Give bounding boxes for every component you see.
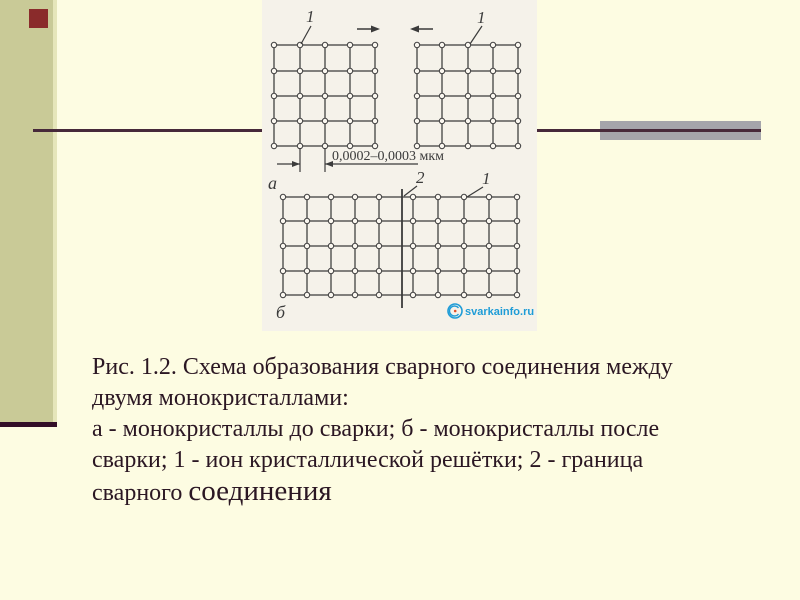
lattice-ion-node xyxy=(514,243,519,248)
ion-label-top-left: 1 xyxy=(306,7,315,26)
leader-boundary xyxy=(404,186,417,196)
lattice-ion-node xyxy=(514,194,519,199)
lattice-ion-node xyxy=(515,68,520,73)
lattice-ion-node xyxy=(372,143,377,148)
lattice-ion-node xyxy=(465,143,470,148)
leader-ion-top-left xyxy=(301,26,311,44)
lattice-ion-node xyxy=(372,118,377,123)
lattice-ion-node xyxy=(486,243,491,248)
lattice-ion-node xyxy=(439,68,444,73)
caption-line-1: Рис. 1.2. Схема образования сварного сое… xyxy=(92,352,772,383)
lattice-ion-node xyxy=(347,118,352,123)
lattice-ion-node xyxy=(414,42,419,47)
watermark: svarkainfo.ru xyxy=(448,304,534,318)
lattice-ion-node xyxy=(328,218,333,223)
left-design-band-edge xyxy=(53,0,57,422)
caption-line-5-start: сварного xyxy=(92,480,188,506)
lattice-ion-node xyxy=(486,292,491,297)
lattice-ion-node xyxy=(347,68,352,73)
lattice-ion-node xyxy=(328,243,333,248)
lattice-ion-node xyxy=(465,93,470,98)
lattice-ion-node xyxy=(439,118,444,123)
welding-scheme-figure: 1 1 0,0002–0,0003 мкм а 2 1 б svarkainfo… xyxy=(262,0,537,331)
lattice-ion-node xyxy=(372,68,377,73)
lattice-ion-node xyxy=(328,292,333,297)
lattice-ion-node xyxy=(352,194,357,199)
subfigure-a-label: а xyxy=(268,173,277,193)
lattice-ion-node xyxy=(514,292,519,297)
monocrystal-top-left xyxy=(271,42,377,148)
lattice-ion-node xyxy=(490,93,495,98)
caption-line-2: двумя монокристаллами: xyxy=(92,383,772,414)
watermark-logo-icon xyxy=(448,304,462,318)
dimension-text: 0,0002–0,0003 мкм xyxy=(332,149,444,164)
lattice-ion-node xyxy=(347,93,352,98)
lattice-ion-node xyxy=(461,243,466,248)
lattice-ion-node xyxy=(297,93,302,98)
boundary-label: 2 xyxy=(416,168,425,187)
lattice-ion-node xyxy=(435,268,440,273)
lattice-ion-node xyxy=(304,194,309,199)
lattice-ion-node xyxy=(514,218,519,223)
figure-caption: Рис. 1.2. Схема образования сварного сое… xyxy=(92,352,772,507)
caption-line-4: сварки; 1 - ион кристаллической решётки;… xyxy=(92,445,772,476)
arrow-right-icon xyxy=(357,26,380,33)
lattice-ion-node xyxy=(515,143,520,148)
lattice-ion-node xyxy=(435,194,440,199)
lattice-ion-node xyxy=(515,42,520,47)
lattice-ion-node xyxy=(322,93,327,98)
slide-bullet-square xyxy=(29,9,48,28)
lattice-ion-node xyxy=(304,292,309,297)
lattice-ion-node xyxy=(414,143,419,148)
lattice-ion-node xyxy=(328,268,333,273)
lattice-ion-node xyxy=(439,42,444,47)
lattice-ion-node xyxy=(461,194,466,199)
lattice-ion-node xyxy=(297,68,302,73)
lattice-ion-node xyxy=(490,68,495,73)
lattice-ion-node xyxy=(322,143,327,148)
lattice-ion-node xyxy=(410,218,415,223)
lattice-ion-node xyxy=(376,268,381,273)
lattice-ion-node xyxy=(490,143,495,148)
lattice-ion-node xyxy=(514,268,519,273)
left-design-band xyxy=(0,0,53,422)
lattice-ion-node xyxy=(347,143,352,148)
lattice-ion-node xyxy=(461,292,466,297)
arrow-left-icon xyxy=(410,26,433,33)
lattice-ion-node xyxy=(410,194,415,199)
caption-line-5: сварного соединения xyxy=(92,476,772,507)
lattice-ion-node xyxy=(280,194,285,199)
lattice-ion-node xyxy=(280,218,285,223)
lattice-ion-node xyxy=(322,42,327,47)
lattice-ion-node xyxy=(304,243,309,248)
lattice-ion-node xyxy=(304,268,309,273)
lattice-ion-node xyxy=(515,93,520,98)
lattice-ion-node xyxy=(465,118,470,123)
lattice-ion-node xyxy=(461,218,466,223)
lattice-ion-node xyxy=(352,243,357,248)
slide: 1 1 0,0002–0,0003 мкм а 2 1 б svarkainfo… xyxy=(0,0,800,600)
lattice-ion-node xyxy=(461,268,466,273)
lattice-ion-node xyxy=(352,268,357,273)
lattice-ion-node xyxy=(465,68,470,73)
lattice-ion-node xyxy=(372,93,377,98)
lattice-figure-svg: 1 1 0,0002–0,0003 мкм а 2 1 б svarkainfo… xyxy=(262,0,537,331)
annotation-layer xyxy=(277,26,483,309)
lattice-ion-node xyxy=(490,118,495,123)
lattice-ion-node xyxy=(280,243,285,248)
lattice-ion-node xyxy=(486,218,491,223)
lattice-ion-node xyxy=(414,118,419,123)
lattice-ion-node xyxy=(435,243,440,248)
lattice-ion-node xyxy=(280,292,285,297)
lattice-ion-node xyxy=(376,218,381,223)
lattice-ion-node xyxy=(486,268,491,273)
lattice-ion-node xyxy=(376,243,381,248)
lattice-ion-node xyxy=(271,68,276,73)
lattice-ion-node xyxy=(352,292,357,297)
lattice-ion-node xyxy=(271,42,276,47)
lattice-ion-node xyxy=(271,93,276,98)
lattice-ion-node xyxy=(410,243,415,248)
lattice-ion-node xyxy=(304,218,309,223)
leader-ion-bottom xyxy=(467,187,483,197)
lattice-ion-node xyxy=(435,218,440,223)
lattice-ion-node xyxy=(439,143,444,148)
lattice-ion-node xyxy=(271,143,276,148)
watermark-text: svarkainfo.ru xyxy=(465,306,534,318)
ion-label-top-right: 1 xyxy=(477,8,486,27)
ion-label-bottom: 1 xyxy=(482,169,491,188)
lattice-ion-node xyxy=(376,292,381,297)
subfigure-b-label: б xyxy=(276,302,286,322)
lattice-ion-node xyxy=(439,93,444,98)
caption-line-3: а - монокристаллы до сварки; б - монокри… xyxy=(92,414,772,445)
lattice-ion-node xyxy=(376,194,381,199)
caption-line-5-emphasis: соединения xyxy=(188,475,331,507)
leader-ion-top-right xyxy=(470,26,482,44)
lattice-ion-node xyxy=(410,268,415,273)
lattice-ion-node xyxy=(435,292,440,297)
lattice-ion-node xyxy=(322,68,327,73)
lattice-ion-node xyxy=(515,118,520,123)
lattice-ion-node xyxy=(297,118,302,123)
left-band-bottom-bar xyxy=(0,422,57,427)
lattice-ion-node xyxy=(414,93,419,98)
lattice-ion-node xyxy=(280,268,285,273)
lattice-ion-node xyxy=(414,68,419,73)
lattice-ion-node xyxy=(352,218,357,223)
lattice-ion-node xyxy=(347,42,352,47)
lattice-ion-node xyxy=(297,143,302,148)
lattice-ion-node xyxy=(490,42,495,47)
lattice-ion-node xyxy=(271,118,276,123)
lattice-ion-node xyxy=(372,42,377,47)
monocrystal-top-right xyxy=(414,42,520,148)
lattice-ion-node xyxy=(322,118,327,123)
lattice-ion-node xyxy=(328,194,333,199)
monocrystals-welded-bottom xyxy=(280,194,519,297)
lattice-ion-node xyxy=(486,194,491,199)
lattice-ion-node xyxy=(410,292,415,297)
